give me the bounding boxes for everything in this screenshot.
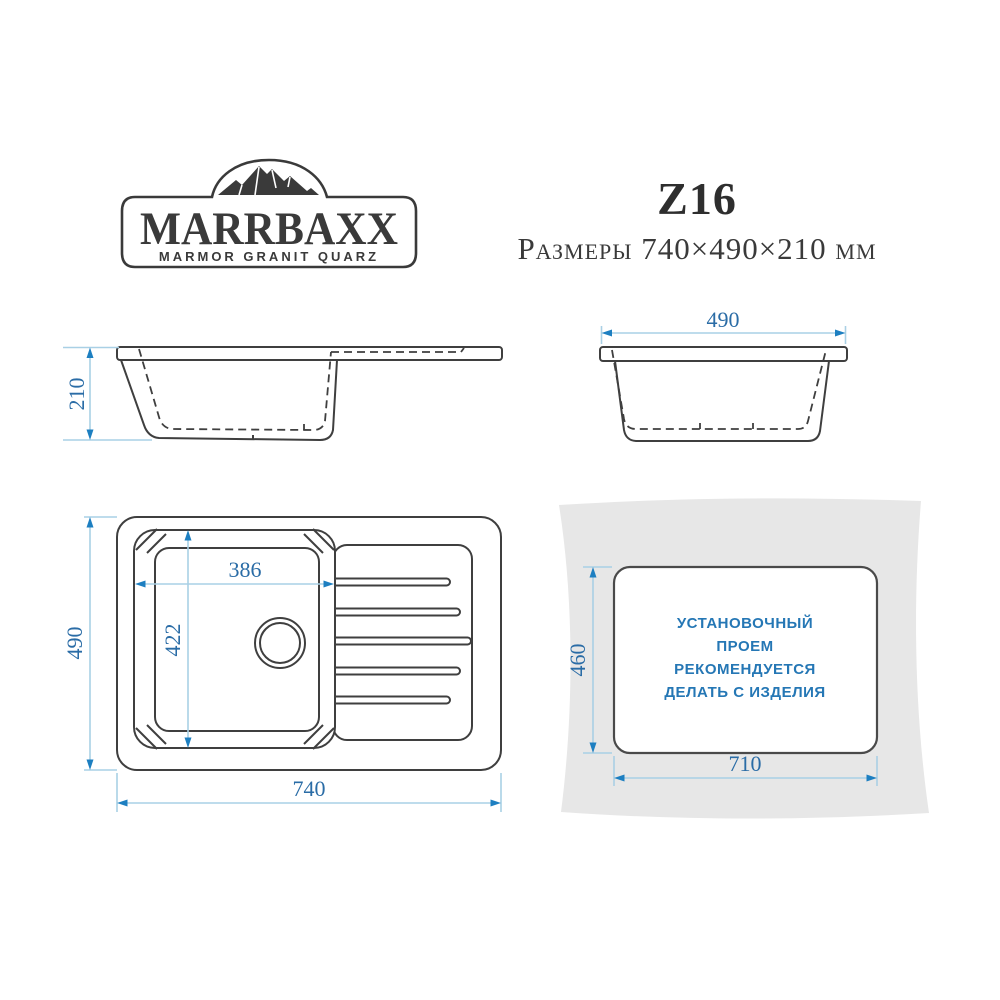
brand-name: MARRBAXX [140, 203, 398, 255]
installation-view: УСТАНОВОЧНЫЙ ПРОЕМ РЕКОМЕНДУЕТСЯ ДЕЛАТЬ … [545, 490, 940, 830]
dim-cutout-width-label: 710 [729, 751, 762, 776]
dim-top-overall-width-label: 740 [293, 776, 326, 801]
brand-logo: MARRBAXX MARMOR GRANIT QUARZ [119, 157, 419, 271]
cutout-note-line2: ПРОЕМ [716, 638, 773, 655]
page: MARRBAXX MARMOR GRANIT QUARZ Z16 Размеры… [0, 0, 1000, 1000]
model-title: Z16 [500, 172, 894, 225]
front-view-outline [600, 347, 847, 441]
drain-hole-inner [260, 623, 300, 663]
dim-front-width: 490 [602, 307, 846, 344]
overall-size-line: Размеры 740×490×210 мм [450, 231, 944, 267]
front-view: 490 [575, 300, 865, 460]
dim-side-height-label: 210 [64, 378, 89, 411]
dim-cutout-height-label: 460 [565, 644, 590, 677]
cutout-opening [614, 567, 877, 753]
dim-bowl-depth-label: 422 [160, 624, 185, 657]
cutout-note-line3: РЕКОМЕНДУЕТСЯ [674, 661, 816, 678]
cutout-note-line1: УСТАНОВОЧНЫЙ [677, 614, 813, 632]
dim-top-overall-depth: 490 [62, 517, 117, 770]
top-view: 490 740 386 422 [55, 505, 520, 825]
brand-tagline: MARMOR GRANIT QUARZ [159, 249, 379, 264]
dim-side-height: 210 [63, 348, 152, 441]
dim-front-width-label: 490 [707, 307, 740, 332]
cutout-note-line4: ДЕЛАТЬ С ИЗДЕЛИЯ [664, 684, 825, 701]
side-view-outline [117, 347, 502, 440]
dim-bowl-width-label: 386 [229, 557, 262, 582]
side-view: 210 [55, 318, 520, 458]
dim-top-overall-depth-label: 490 [62, 627, 87, 660]
dim-top-overall-width: 740 [117, 773, 501, 812]
